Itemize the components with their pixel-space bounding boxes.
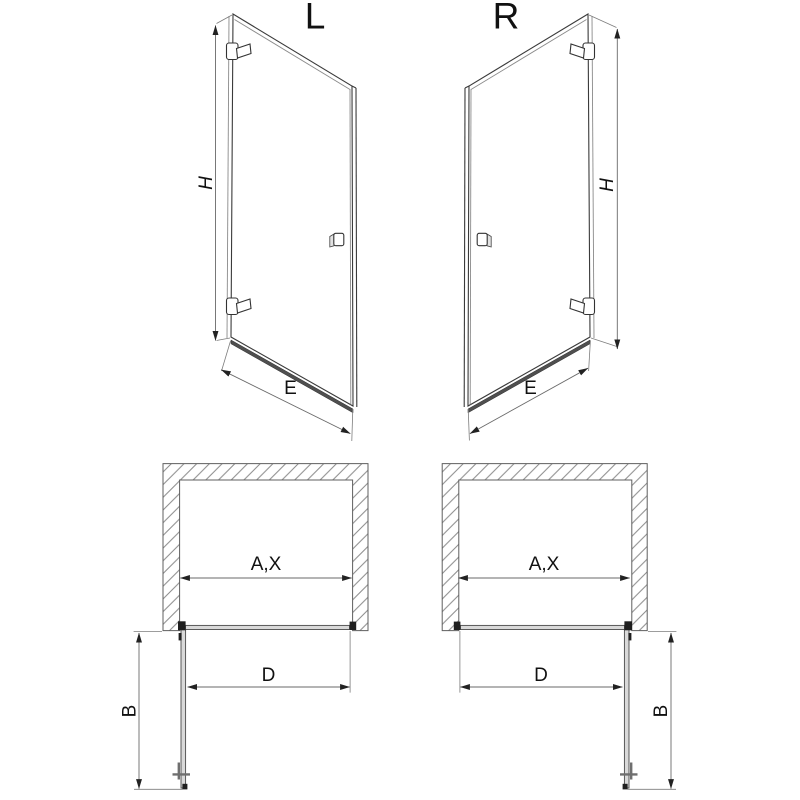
opening-dim-label-left: A,X bbox=[251, 554, 282, 575]
elevation-right-title: R bbox=[493, 0, 520, 37]
door-width-dim-label-left: D bbox=[262, 665, 276, 686]
wall-section-right bbox=[442, 464, 647, 631]
swing-depth-dim-label-right: B bbox=[651, 705, 672, 718]
height-dim-label-right: H bbox=[597, 178, 618, 192]
door-width-dim-label-right: D bbox=[534, 665, 548, 686]
width-dim-label-right: E bbox=[524, 378, 537, 399]
plan-right bbox=[442, 464, 676, 790]
elevation-right bbox=[464, 14, 617, 441]
height-dim-label-left: H bbox=[196, 176, 217, 190]
width-dim-label-left: E bbox=[284, 378, 297, 399]
plan-left bbox=[134, 464, 368, 790]
shower-door-diagram: L R H H E E A,X A,X D D B B bbox=[0, 0, 800, 800]
elevation-left bbox=[216, 14, 357, 441]
opening-dim-label-right: A,X bbox=[529, 554, 560, 575]
wall-section-left bbox=[163, 464, 368, 631]
swing-depth-dim-label-left: B bbox=[120, 705, 141, 718]
technical-drawing-page: L R H H E E A,X A,X D D B B bbox=[0, 0, 800, 800]
elevation-left-title: L bbox=[305, 0, 326, 37]
